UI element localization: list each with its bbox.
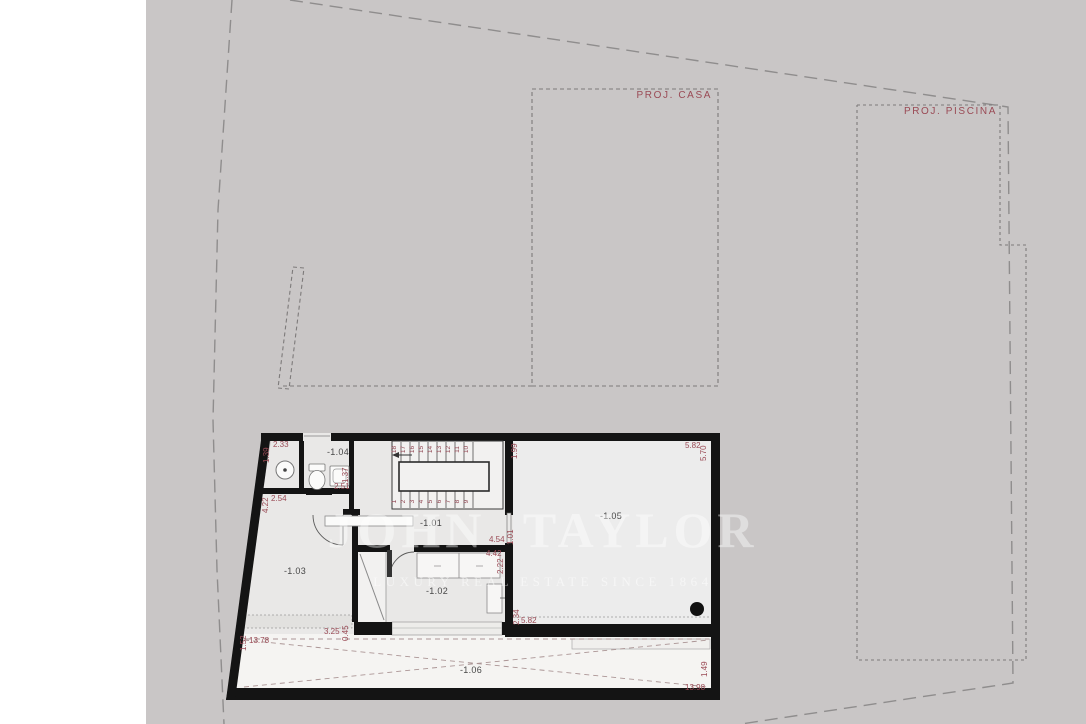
proj-casa-label: PROJ. CASA [600, 90, 712, 101]
dim-4-42: 4.42 [486, 549, 502, 558]
stair-well-railing [399, 462, 489, 491]
room-label-106: -1.06 [460, 665, 482, 675]
room-label-101: -1.01 [420, 518, 442, 528]
ramp-strip [358, 552, 386, 622]
dim-1-52: 1.52 [239, 635, 248, 651]
dim-3-25: 3.25 [324, 627, 340, 636]
stair-numbers-upper: 1817 1615 1413 1211 10 [392, 444, 473, 455]
room-label-102: -1.02 [426, 586, 448, 596]
dim-13-98: 13.98 [685, 683, 705, 692]
shower-drain-icon [276, 461, 294, 479]
room-label-105: -1.05 [600, 511, 622, 521]
dim-4-22: 4.22 [261, 497, 270, 513]
shower-tray [487, 584, 505, 613]
dim-1-37: 1.37 [341, 467, 350, 483]
dim-2-33: 2.33 [273, 440, 289, 449]
dim-1-39: 1.39 [262, 447, 271, 463]
dim-5-82-mid: 5.82 [521, 616, 537, 625]
floor-plan-sheet: PROJ. CASA PROJ. PISCINA -1.04 -1.01 -1.… [0, 0, 1086, 724]
dim-2-34: 2.34 [512, 609, 521, 625]
dim-1-49: 1.49 [700, 661, 709, 677]
room-105-floor [513, 441, 711, 624]
stair-numbers-lower: 12 34 56 78 9 [392, 496, 473, 507]
dim-2-54: 2.54 [271, 494, 287, 503]
window-opening [303, 433, 331, 441]
column-dot [690, 602, 704, 616]
dim-2-51: 2.51 [334, 482, 350, 491]
room-label-103: -1.03 [284, 566, 306, 576]
room-label-104: -1.04 [327, 447, 349, 457]
toilet-icon [309, 464, 325, 490]
dim-5-70: 5.70 [699, 445, 708, 461]
proj-piscina-label: PROJ. PISCINA [870, 106, 997, 117]
dim-4-54: 4.54 [489, 535, 505, 544]
dim-2-22: 2.22 [496, 558, 505, 574]
dim-1-99: 1.99 [510, 443, 519, 459]
door-leaf [387, 550, 392, 577]
dim-0-45: 0.45 [341, 625, 350, 641]
sideboard [325, 516, 413, 526]
dim-13-78: 13.78 [249, 636, 269, 645]
dim-1-01: 1.01 [506, 529, 515, 545]
